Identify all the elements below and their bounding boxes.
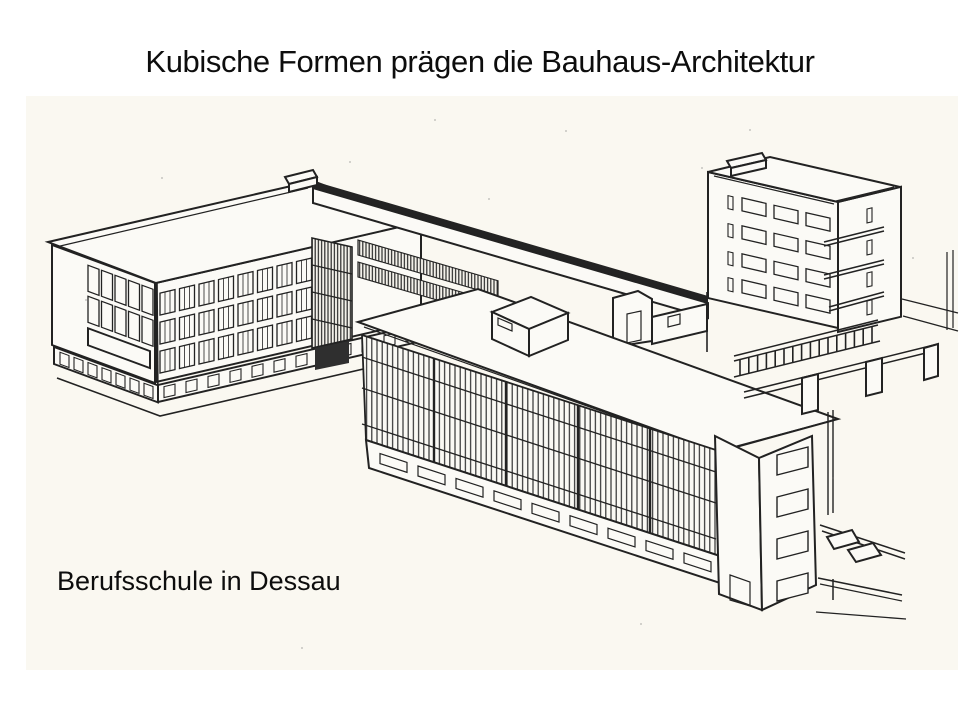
studio-tower bbox=[708, 153, 901, 332]
slide: Kubische Formen prägen die Bauhaus-Archi… bbox=[0, 0, 960, 720]
staircase-glazing bbox=[312, 238, 352, 370]
slide-title: Kubische Formen prägen die Bauhaus-Archi… bbox=[0, 44, 960, 80]
figure-caption: Berufsschule in Dessau bbox=[57, 566, 341, 597]
bauhaus-axonometric-drawing bbox=[0, 0, 960, 720]
